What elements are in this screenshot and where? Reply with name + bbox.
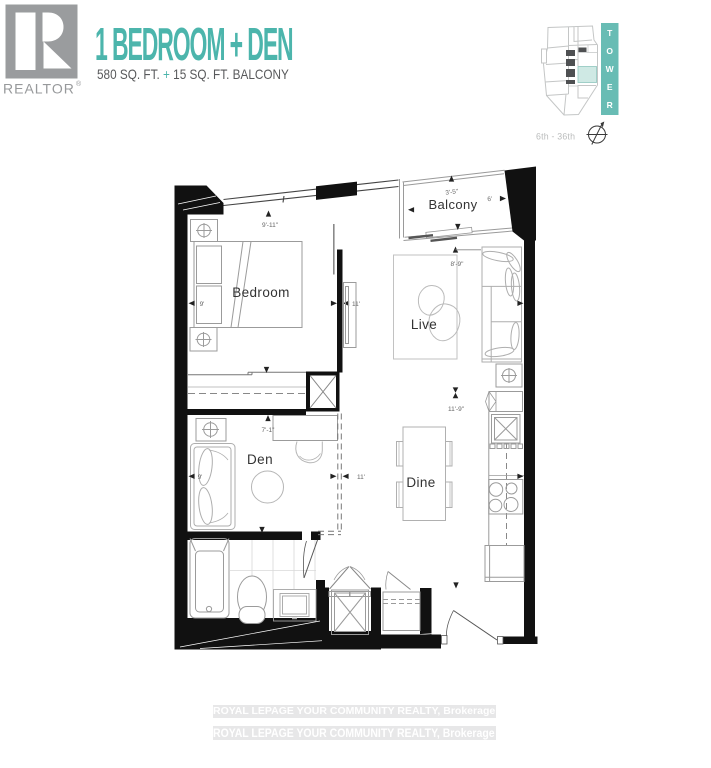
svg-text:W: W: [606, 64, 615, 74]
svg-text:8'-9": 8'-9": [451, 261, 465, 268]
svg-text:11'-9": 11'-9": [448, 406, 465, 413]
svg-text:R: R: [607, 100, 613, 110]
svg-text:Den: Den: [247, 452, 273, 467]
svg-text:Balcony: Balcony: [428, 197, 477, 212]
svg-text:E: E: [607, 82, 613, 92]
svg-text:7'-1": 7'-1": [262, 427, 276, 434]
svg-text:T: T: [607, 28, 613, 38]
svg-text:11': 11': [357, 474, 365, 481]
svg-text:6th - 36th: 6th - 36th: [536, 132, 575, 142]
svg-text:6': 6': [487, 196, 493, 204]
svg-text:Dine: Dine: [406, 475, 435, 490]
svg-text:3'-5": 3'-5": [445, 188, 459, 197]
svg-text:Bedroom: Bedroom: [232, 285, 290, 300]
svg-text:Live: Live: [411, 317, 437, 332]
svg-text:9'-11": 9'-11": [262, 222, 279, 229]
svg-text:9': 9': [200, 301, 205, 308]
svg-text:9': 9': [198, 474, 203, 481]
svg-text:O: O: [606, 46, 613, 56]
